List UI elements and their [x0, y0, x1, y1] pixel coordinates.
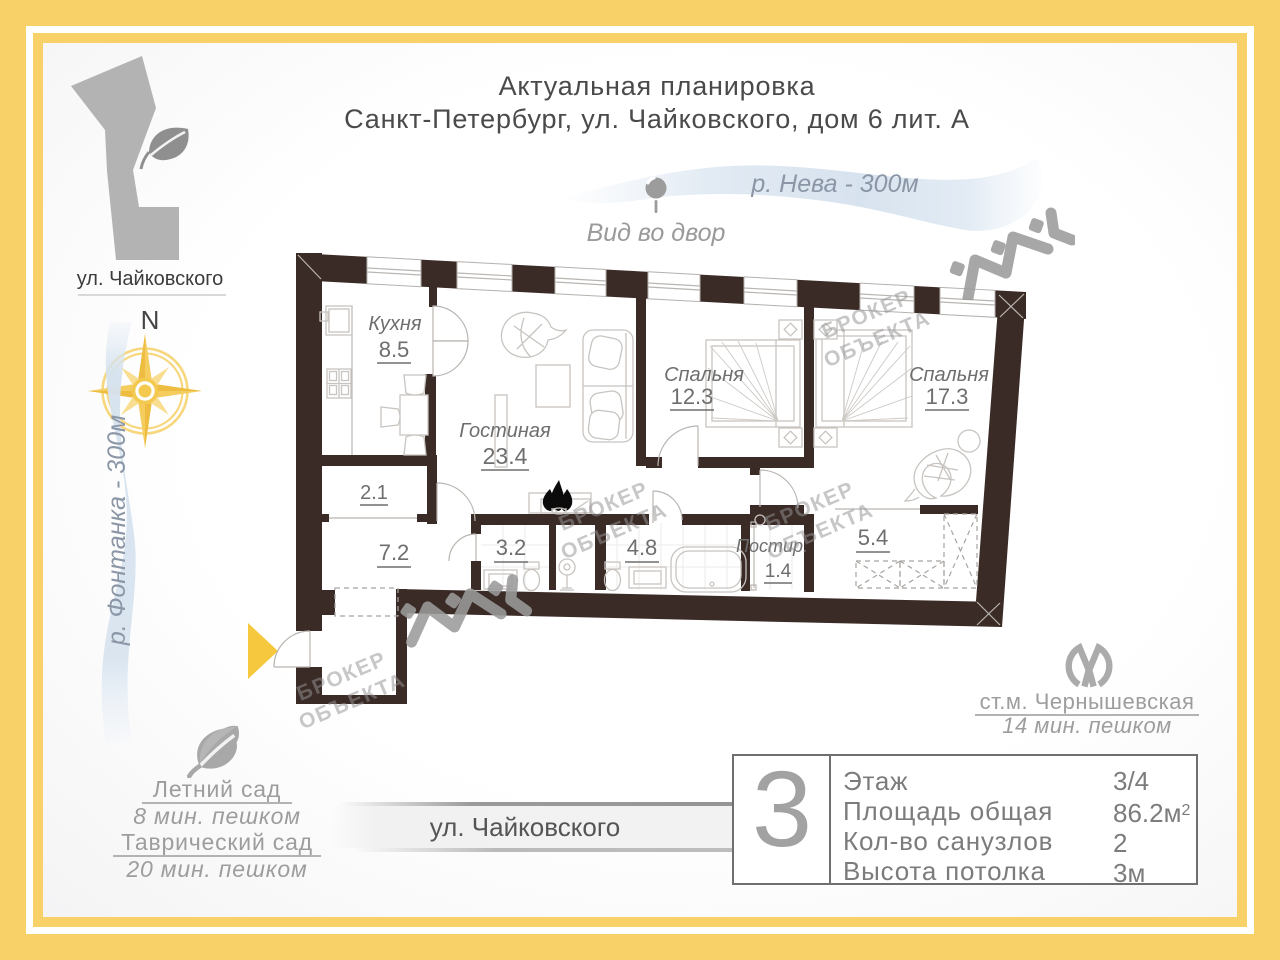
svg-text:2.1: 2.1: [360, 482, 388, 504]
svg-text:8.5: 8.5: [379, 337, 410, 362]
svg-text:17.3: 17.3: [926, 384, 969, 409]
svg-text:23.4: 23.4: [483, 443, 528, 469]
svg-text:Гостиная: Гостиная: [459, 420, 551, 442]
svg-text:Спальня: Спальня: [909, 364, 989, 386]
svg-text:Кухня: Кухня: [368, 313, 422, 335]
svg-text:5.4: 5.4: [858, 525, 889, 550]
svg-text:12.3: 12.3: [671, 384, 714, 409]
svg-text:Спальня: Спальня: [664, 364, 744, 386]
